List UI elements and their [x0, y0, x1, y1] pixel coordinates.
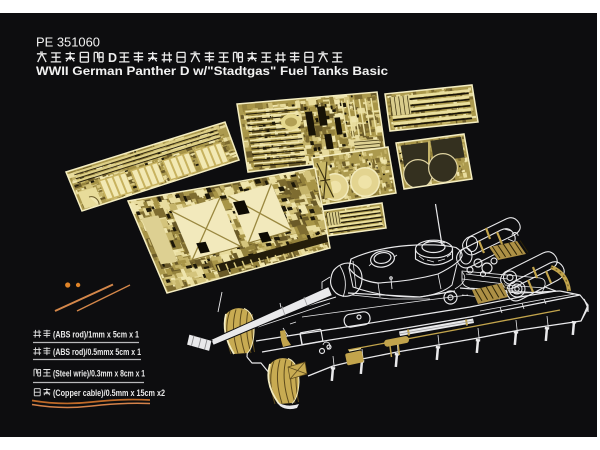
svg-text:WWII German Panther D w/"Stad: WWII German Panther D w/"Stadtgas" Fuel …	[36, 64, 388, 78]
svg-text:(ABS rod)/1mm x 5cm x 1: (ABS rod)/1mm x 5cm x 1	[53, 330, 139, 340]
svg-text:(Steel wrie)/0.3mm x 8cm x 1: (Steel wrie)/0.3mm x 8cm x 1	[53, 369, 145, 379]
svg-text:PE 351060: PE 351060	[36, 36, 100, 50]
svg-text:(Copper cable)/0.5mm x 15cm x2: (Copper cable)/0.5mm x 15cm x2	[53, 388, 165, 398]
svg-text:D: D	[108, 51, 117, 65]
svg-text:(ABS rod)/0.5mmx 5cm x 1: (ABS rod)/0.5mmx 5cm x 1	[53, 347, 141, 357]
